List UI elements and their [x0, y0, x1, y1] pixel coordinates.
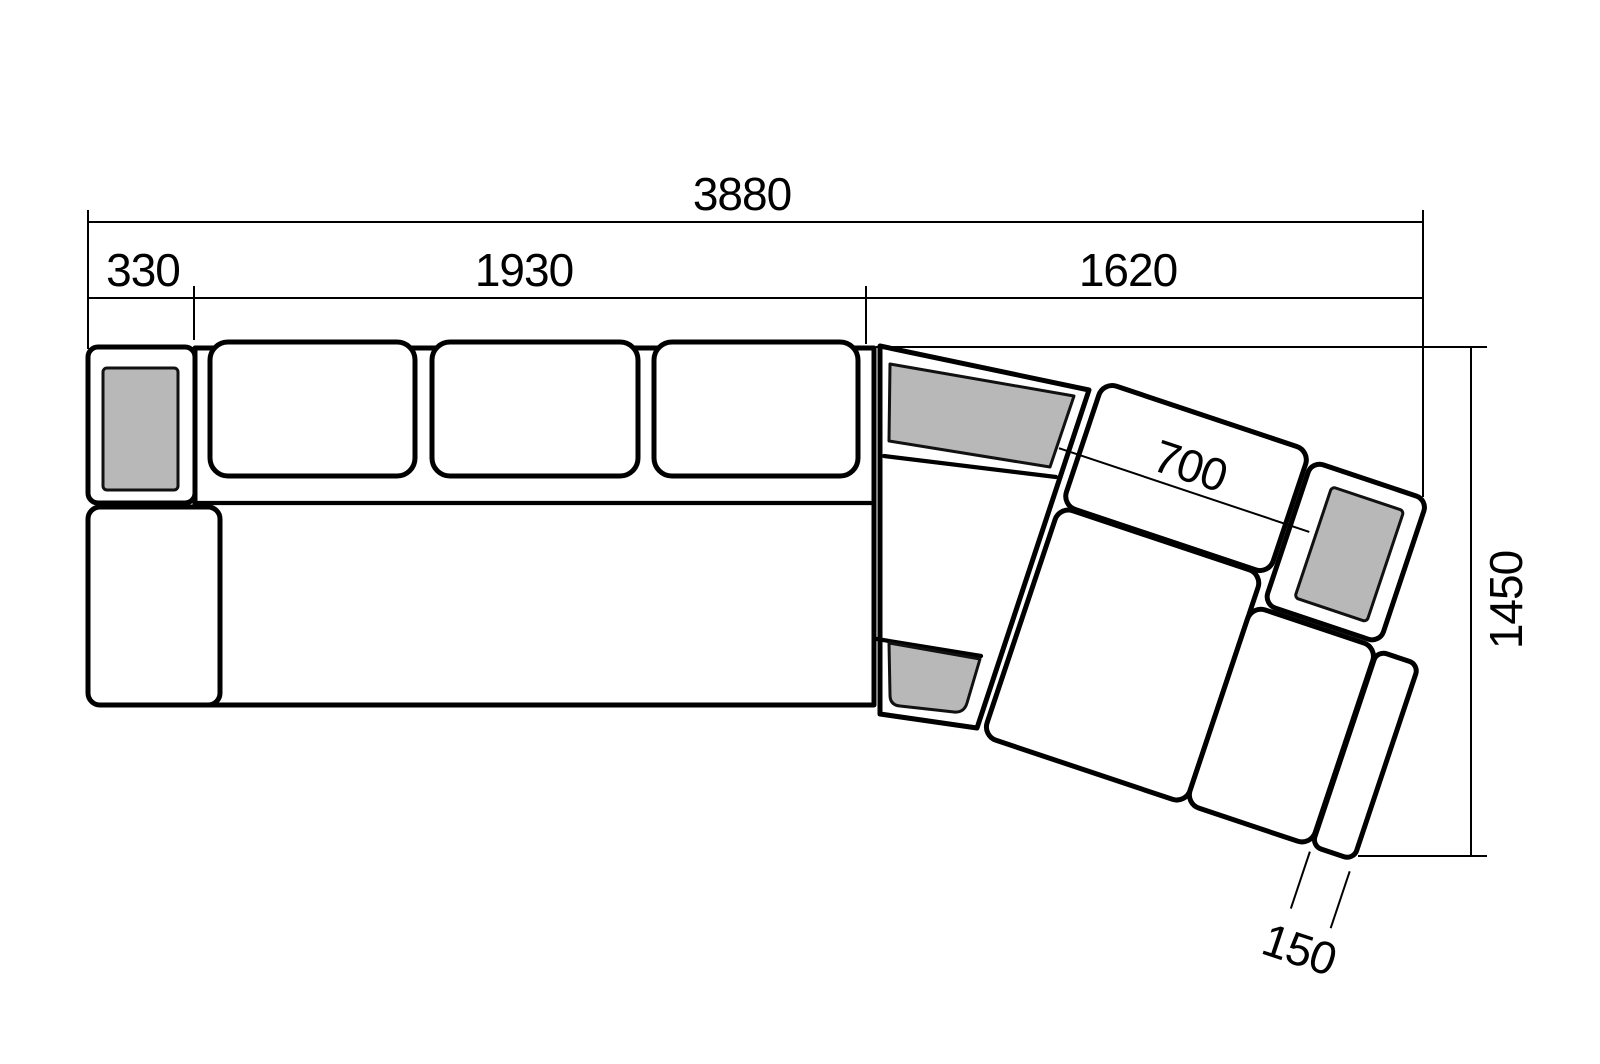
dim-label-angled-section: 1620 [1079, 244, 1177, 296]
extension-line-strip-2 [1331, 871, 1350, 928]
left-armrest-panel [103, 368, 178, 490]
extension-line-strip-1 [1291, 852, 1310, 909]
chaise-module [88, 507, 220, 705]
straight-section [88, 342, 874, 705]
back-cushion-2 [432, 342, 638, 476]
dim-label-end-strip: 150 [1256, 913, 1342, 986]
drawing-canvas: 700 150 3880 330 1930 1620 1450 [0, 0, 1600, 1064]
sofa-plan-drawing: 700 150 3880 330 1930 1620 1450 [0, 0, 1600, 1064]
back-cushion-1 [210, 342, 415, 476]
dim-label-armrest: 330 [106, 244, 180, 296]
back-cushion-3 [654, 342, 858, 476]
dim-label-total: 3880 [693, 168, 791, 220]
dim-label-depth: 1450 [1480, 551, 1532, 649]
dim-label-straight-section: 1930 [475, 244, 573, 296]
